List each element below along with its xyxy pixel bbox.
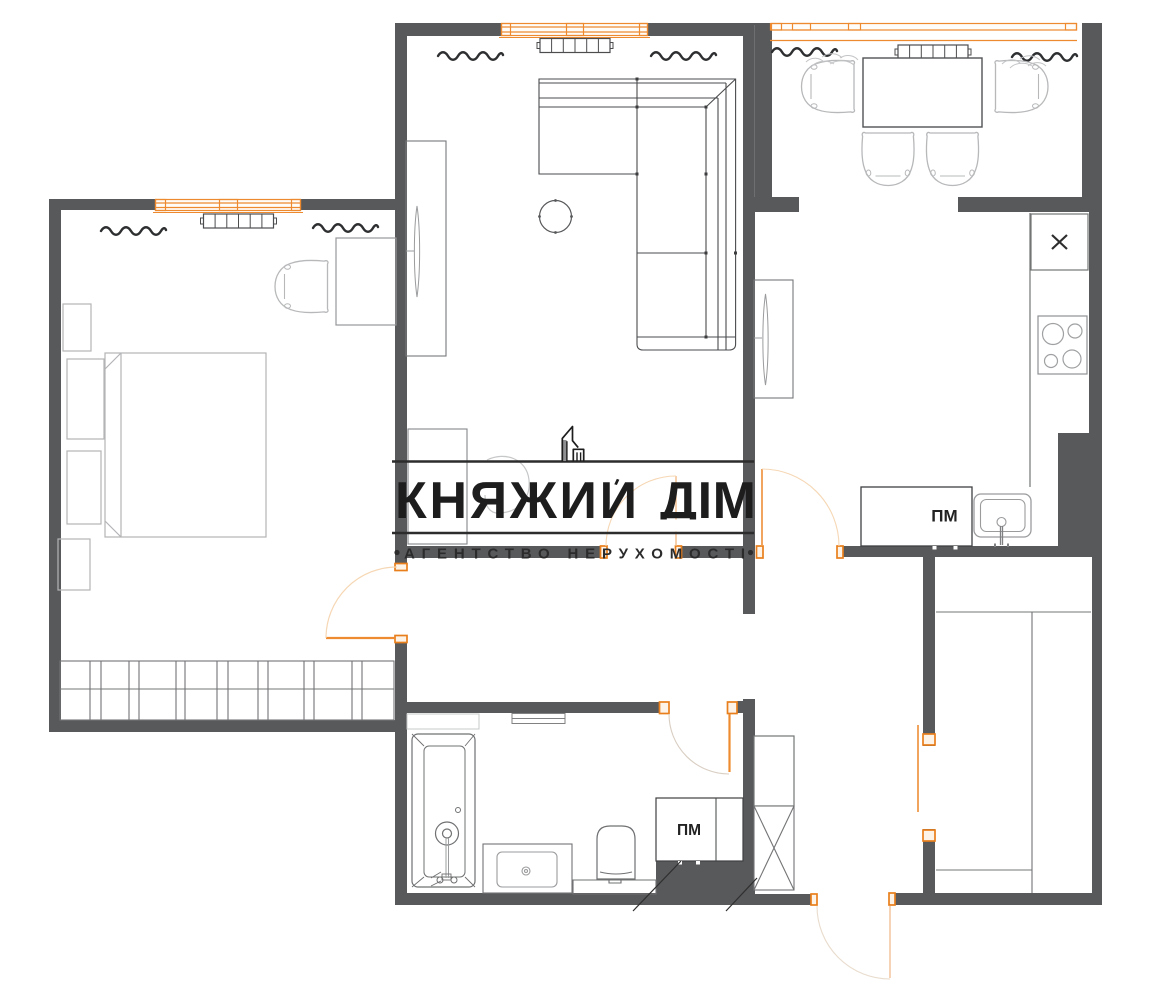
svg-text:ПМ: ПМ: [677, 822, 701, 839]
svg-text:АГЕНТСТВО НЕРУХОМОСТІ: АГЕНТСТВО НЕРУХОМОСТІ: [404, 546, 745, 563]
svg-text:КНЯЖИИ: КНЯЖИИ: [395, 472, 637, 530]
svg-text:ПМ: ПМ: [931, 507, 957, 526]
